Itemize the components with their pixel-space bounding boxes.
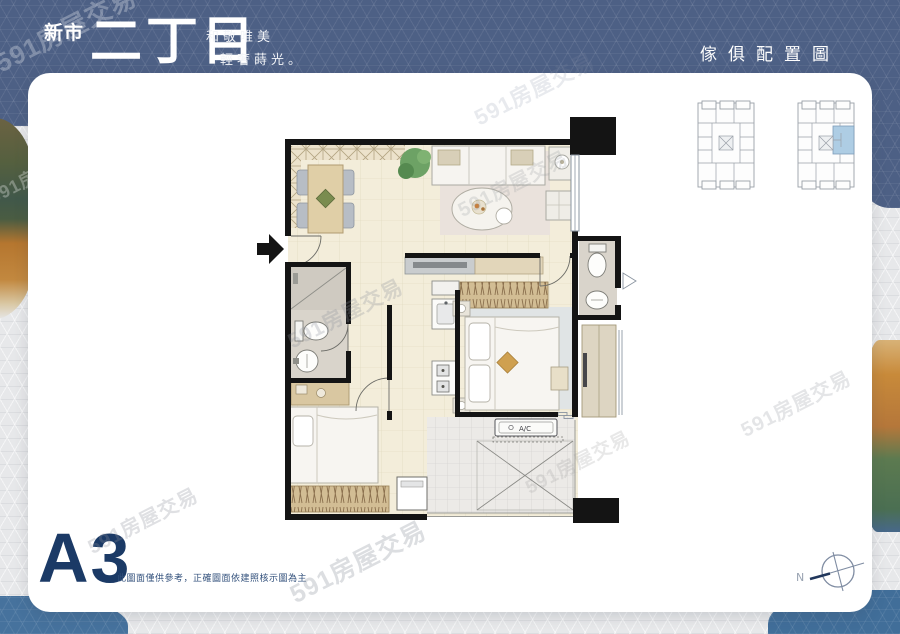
compass-needle	[810, 574, 830, 580]
page-title: 傢俱配置圖	[700, 40, 875, 65]
slogan-line-1: 和敬唯美	[206, 26, 305, 49]
slogan-line-2: 輕奢蒔光。	[220, 49, 305, 72]
ac-label: A/C	[519, 425, 531, 433]
side-round-table	[496, 208, 512, 224]
sofa-cushion	[511, 150, 533, 165]
pillow	[293, 416, 313, 446]
brand-slogan: 和敬唯美 輕奢蒔光。	[206, 26, 305, 72]
compass: N	[790, 540, 870, 604]
brand-location-text: 新市	[44, 23, 84, 45]
brand-location: 新市	[44, 23, 84, 45]
disclaimer-text: 此圖面僅供參考，正確圖面依建照核示圖為主	[117, 571, 307, 584]
pillow	[469, 323, 490, 360]
compass-north-label: N	[796, 571, 804, 584]
entry-arrow-icon	[257, 234, 284, 264]
ottoman	[546, 191, 573, 220]
toilet-icon	[588, 253, 606, 277]
pillow	[469, 365, 490, 402]
bath-door-swing	[623, 273, 636, 289]
top-cabinet	[300, 143, 405, 160]
structural-column	[570, 117, 616, 155]
floorplan-poster: { "banner": { "location": "新市", "name": …	[0, 0, 900, 634]
key-plan-right	[793, 100, 859, 190]
floor-plan: A/C	[255, 115, 639, 527]
toilet-icon	[304, 322, 328, 340]
sofa-cushion	[438, 150, 460, 165]
fridge	[432, 281, 459, 295]
structural-column	[573, 498, 619, 523]
bedroom-chair	[551, 367, 568, 390]
tv-cabinet	[475, 257, 543, 274]
unit-label: A3	[38, 518, 131, 598]
key-plan-left	[693, 100, 759, 190]
living-window	[571, 155, 579, 231]
tv-icon	[583, 353, 587, 387]
